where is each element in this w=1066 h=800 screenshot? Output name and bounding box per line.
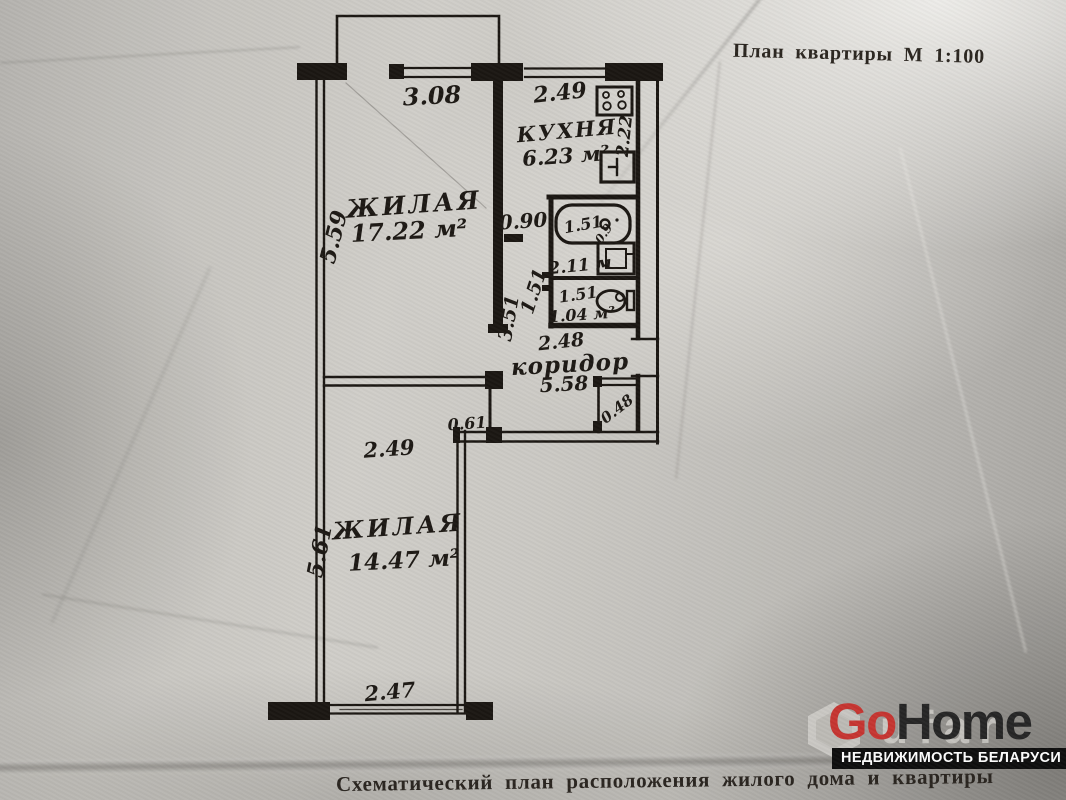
gohome-watermark: ufar GoHome НЕДВИЖИМОСТЬ БЕЛАРУСИ [828,696,1058,786]
door-jamb [485,371,503,389]
passage-jamb [504,234,523,242]
dim-living1-width: 3.08 [402,79,462,111]
window-living1 [404,68,472,77]
dim-passage: 0.90 [498,207,548,234]
window-jamb [389,64,404,79]
gohome-logo-go: Go [828,693,896,750]
gohome-tagline: НЕДВИЖИМОСТЬ БЕЛАРУСИ [832,748,1066,769]
dim-wall-segment: 0.61 [447,413,487,435]
dim-living2-width-bottom: 2.47 [362,677,417,706]
floor-plan: 3.08 2.49 КУХНЯ 6.23 м² 2.22 ЖИЛАЯ 17.22… [0,0,1066,800]
door-jamb [486,427,502,443]
dim-closet: 0.48 [597,390,637,427]
dim-living1-height: 5.59 [315,208,353,266]
left-wall [317,80,325,704]
window-kitchen [525,69,605,78]
living2-area: 14.47 м² [347,544,460,577]
wall-cap [605,63,663,81]
scanned-floor-plan-photo: 3.08 2.49 КУХНЯ 6.23 м² 2.22 ЖИЛАЯ 17.22… [0,0,1066,800]
living2-right-wall [458,431,466,712]
corridor-area: 5.58 [539,371,589,398]
dim-living2-height: 5.61 [302,522,338,580]
dim-wc-width: 1.51 [557,282,598,306]
plan-labels: 3.08 2.49 КУХНЯ 6.23 м² 2.22 ЖИЛАЯ 17.22… [302,77,637,706]
gohome-logo: GoHome [828,696,1058,747]
living1-area: 17.22 м² [350,213,468,248]
gohome-logo-home: Home [896,693,1032,750]
dim-kitchen-width: 2.49 [531,77,588,109]
dim-hall-side-b: 1.51 [516,266,551,317]
balcony-outline [337,16,499,67]
wall-cap [297,63,347,80]
dim-living2-width-top: 2.49 [362,434,416,463]
stove-icon [597,87,632,115]
right-wall [632,81,658,443]
wall-cap [466,702,493,720]
top-wall [297,63,663,81]
window-living2 [330,705,468,714]
living2-name: ЖИЛАЯ [330,507,465,545]
kitchen-area: 6.23 м² [521,140,610,171]
wall-cap [268,702,330,720]
